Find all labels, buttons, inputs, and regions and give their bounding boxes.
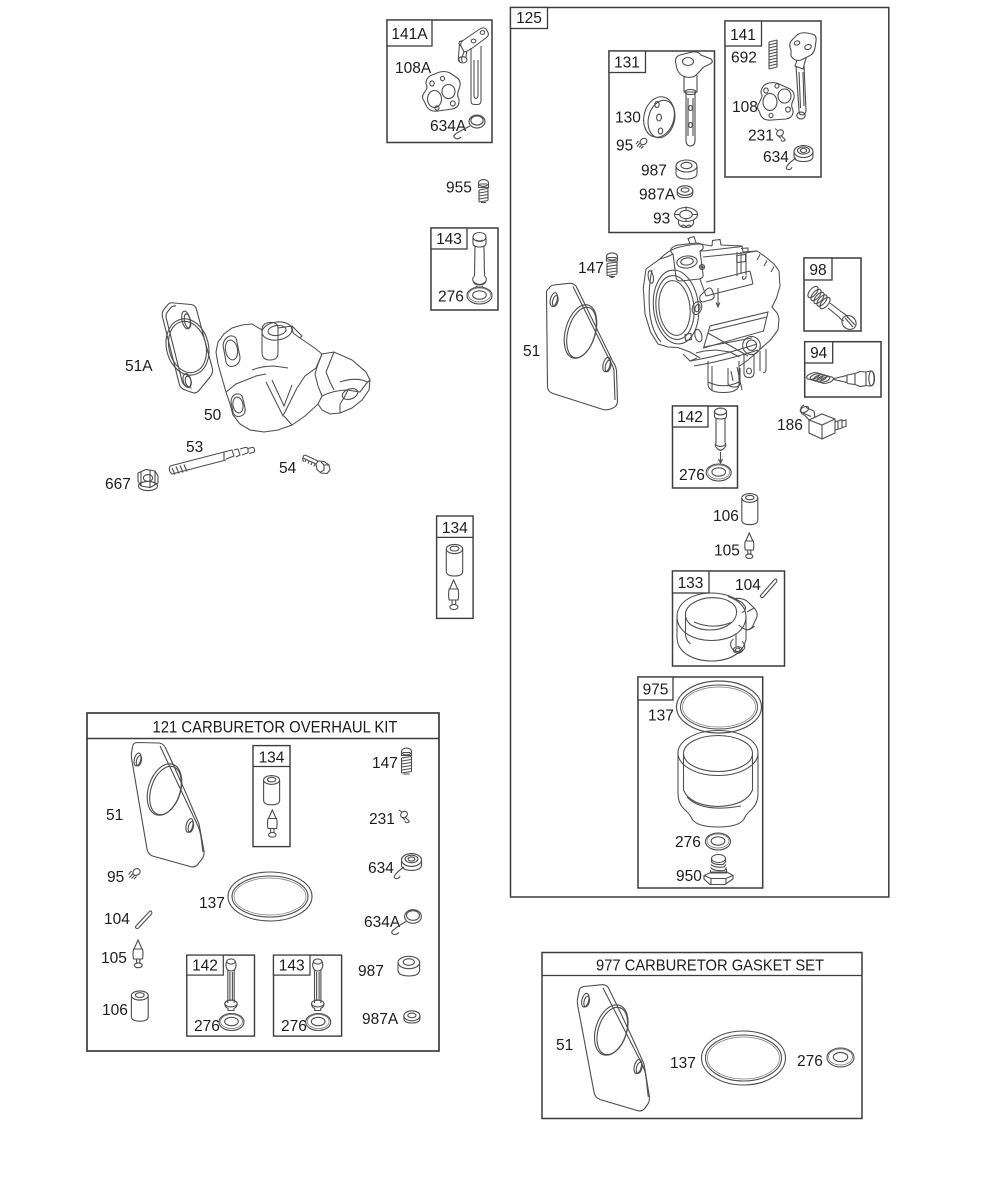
svg-text:987A: 987A [362,1011,399,1028]
svg-text:104: 104 [735,577,761,594]
svg-text:142: 142 [677,409,703,426]
svg-text:125: 125 [516,10,542,27]
svg-text:276: 276 [679,467,705,484]
svg-text:231: 231 [748,128,774,145]
svg-text:95: 95 [616,138,633,155]
svg-text:987: 987 [641,163,667,180]
svg-text:51: 51 [106,807,123,824]
svg-text:276: 276 [194,1018,220,1035]
svg-text:54: 54 [279,460,297,477]
svg-text:104: 104 [104,911,130,928]
svg-text:105: 105 [714,543,740,560]
svg-text:950: 950 [676,868,702,885]
svg-text:137: 137 [648,708,674,725]
svg-text:134: 134 [442,520,468,537]
svg-text:987: 987 [358,963,384,980]
svg-text:141: 141 [730,27,756,44]
svg-text:133: 133 [678,575,704,592]
svg-text:137: 137 [670,1055,696,1072]
svg-text:147: 147 [372,755,398,772]
svg-text:987A: 987A [639,187,676,204]
svg-text:142: 142 [192,958,218,975]
svg-text:95: 95 [107,869,124,886]
svg-text:276: 276 [797,1053,823,1070]
svg-text:143: 143 [436,231,462,248]
svg-text:276: 276 [438,289,464,306]
svg-text:186: 186 [777,417,803,434]
svg-text:667: 667 [105,476,131,493]
svg-text:137: 137 [199,895,225,912]
svg-text:106: 106 [713,508,739,525]
svg-text:692: 692 [731,50,757,67]
svg-text:94: 94 [810,345,828,362]
svg-text:108A: 108A [395,60,432,77]
svg-text:955: 955 [446,180,472,197]
svg-text:231: 231 [369,811,395,828]
svg-text:143: 143 [279,958,305,975]
svg-text:134: 134 [259,750,285,767]
svg-text:51A: 51A [125,358,153,375]
svg-text:634A: 634A [430,118,467,135]
svg-text:51: 51 [556,1037,573,1054]
svg-text:131: 131 [614,55,640,72]
svg-text:141A: 141A [391,26,428,43]
svg-text:276: 276 [281,1018,307,1035]
svg-text:106: 106 [102,1002,128,1019]
svg-text:977 CARBURETOR GASKET SET: 977 CARBURETOR GASKET SET [596,958,824,975]
svg-text:50: 50 [204,407,222,424]
svg-text:51: 51 [523,343,540,360]
svg-text:130: 130 [615,110,641,127]
svg-text:276: 276 [675,834,701,851]
svg-text:147: 147 [578,260,604,277]
svg-text:105: 105 [101,950,127,967]
svg-text:975: 975 [643,682,669,699]
svg-text:634: 634 [763,149,789,166]
svg-text:121 CARBURETOR OVERHAUL KIT: 121 CARBURETOR OVERHAUL KIT [153,718,398,737]
svg-text:108: 108 [732,99,758,116]
svg-text:53: 53 [186,439,203,456]
svg-text:98: 98 [809,262,826,279]
svg-text:93: 93 [653,211,670,228]
svg-text:634: 634 [368,860,394,877]
